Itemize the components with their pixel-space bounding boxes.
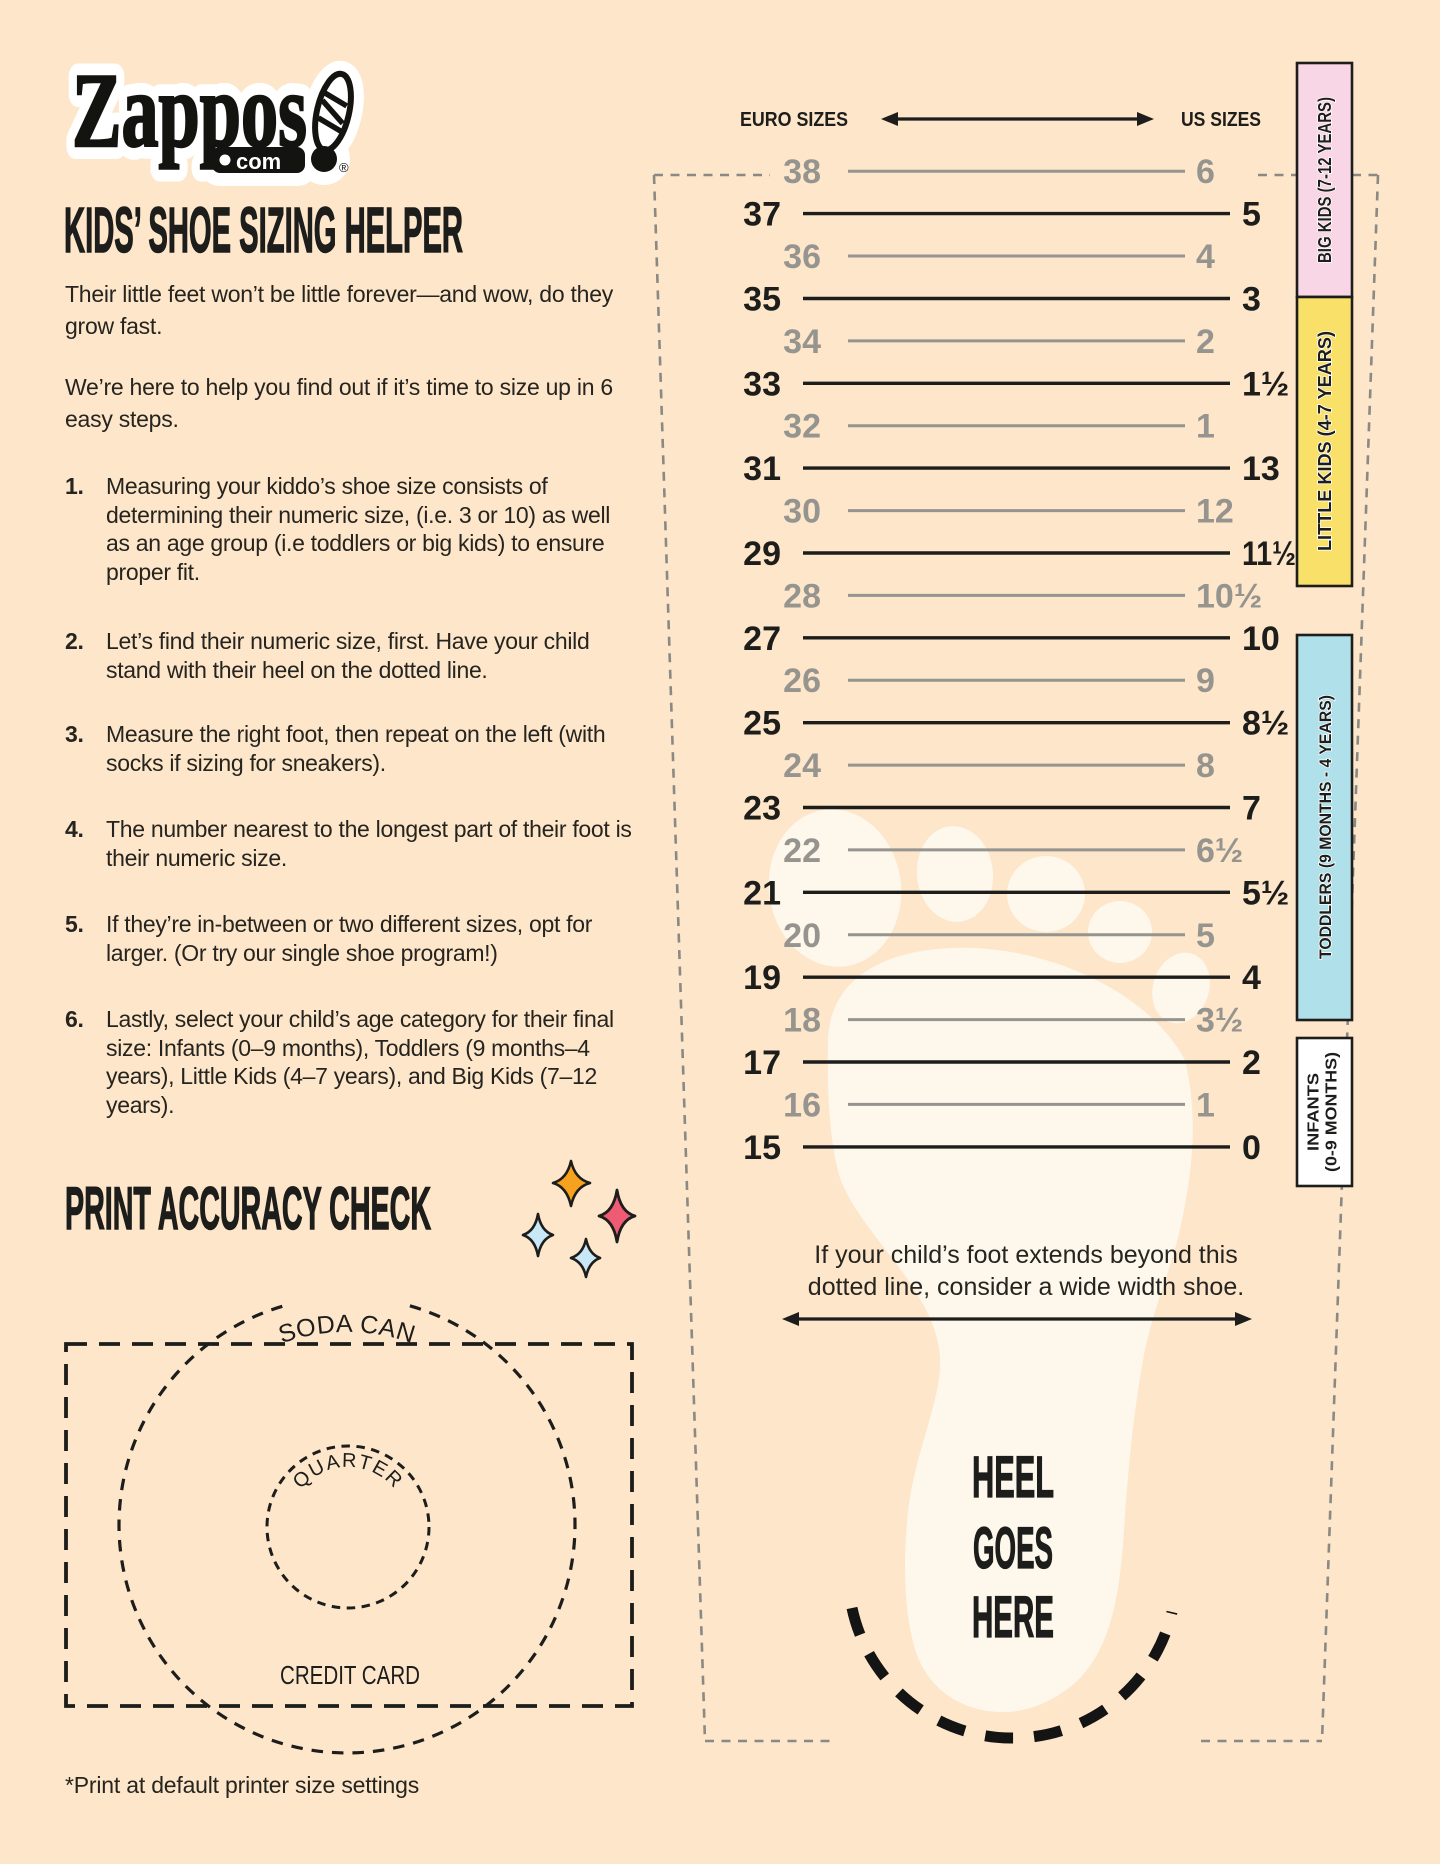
svg-text:15: 15 bbox=[743, 1129, 781, 1167]
svg-text:3: 3 bbox=[1242, 281, 1261, 319]
svg-text:13: 13 bbox=[1242, 450, 1280, 488]
svg-text:12: 12 bbox=[1196, 493, 1234, 531]
svg-text:6: 6 bbox=[1196, 153, 1215, 191]
svg-text:29: 29 bbox=[743, 535, 781, 573]
svg-text:5½: 5½ bbox=[1242, 874, 1289, 912]
svg-text:(0-9 MONTHS): (0-9 MONTHS) bbox=[1324, 1052, 1341, 1172]
svg-text:EURO SIZES: EURO SIZES bbox=[740, 109, 848, 131]
svg-text:6½: 6½ bbox=[1196, 832, 1243, 870]
svg-text:4: 4 bbox=[1242, 959, 1261, 997]
svg-text:28: 28 bbox=[783, 577, 821, 615]
svg-text:1: 1 bbox=[1196, 1086, 1215, 1124]
svg-text:37: 37 bbox=[743, 196, 781, 234]
svg-text:9: 9 bbox=[1196, 662, 1215, 700]
svg-text:25: 25 bbox=[743, 705, 781, 743]
svg-text:16: 16 bbox=[783, 1086, 821, 1124]
svg-text:1½: 1½ bbox=[1242, 365, 1289, 403]
svg-text:1: 1 bbox=[1196, 408, 1215, 446]
svg-text:10: 10 bbox=[1242, 620, 1280, 658]
svg-text:32: 32 bbox=[783, 408, 821, 446]
svg-text:BIG KIDS (7-12 YEARS): BIG KIDS (7-12 YEARS) bbox=[1315, 97, 1335, 263]
svg-text:CREDIT CARD: CREDIT CARD bbox=[280, 1660, 420, 1690]
svg-text:36: 36 bbox=[783, 238, 821, 276]
svg-text:27: 27 bbox=[743, 620, 781, 658]
svg-text:21: 21 bbox=[743, 874, 781, 912]
svg-text:PRINT ACCURACY CHECK: PRINT ACCURACY CHECK bbox=[65, 1175, 431, 1242]
svg-text:2: 2 bbox=[1242, 1044, 1261, 1082]
svg-text:5: 5 bbox=[1242, 196, 1261, 234]
svg-text:38: 38 bbox=[783, 153, 821, 191]
svg-text:2: 2 bbox=[1196, 323, 1215, 361]
svg-text:TODDLERS (9 MONTHS - 4 YEARS): TODDLERS (9 MONTHS - 4 YEARS) bbox=[1316, 695, 1335, 959]
svg-text:19: 19 bbox=[743, 959, 781, 997]
svg-text:HEEL: HEEL bbox=[972, 1445, 1054, 1510]
svg-text:dotted line, consider a wide w: dotted line, consider a wide width shoe. bbox=[808, 1273, 1244, 1301]
svg-text:18: 18 bbox=[783, 1002, 821, 1040]
svg-text:4: 4 bbox=[1196, 238, 1215, 276]
svg-text:20: 20 bbox=[783, 917, 821, 955]
svg-text:8: 8 bbox=[1196, 747, 1215, 785]
svg-text:33: 33 bbox=[743, 365, 781, 403]
svg-text:HERE: HERE bbox=[972, 1585, 1054, 1650]
svg-text:com: com bbox=[236, 149, 281, 174]
svg-text:3½: 3½ bbox=[1196, 1002, 1243, 1040]
svg-text:7: 7 bbox=[1242, 790, 1261, 828]
svg-text:22: 22 bbox=[783, 832, 821, 870]
svg-text:17: 17 bbox=[743, 1044, 781, 1082]
svg-text:11½: 11½ bbox=[1242, 535, 1296, 573]
svg-text:34: 34 bbox=[783, 323, 821, 361]
svg-text:23: 23 bbox=[743, 790, 781, 828]
svg-text:31: 31 bbox=[743, 450, 781, 488]
svg-text:35: 35 bbox=[743, 281, 781, 319]
svg-text:If your child’s foot extends b: If your child’s foot extends beyond this bbox=[814, 1241, 1237, 1269]
svg-text:8½: 8½ bbox=[1242, 705, 1289, 743]
svg-text:GOES: GOES bbox=[973, 1516, 1053, 1581]
svg-text:®: ® bbox=[339, 160, 349, 175]
svg-text:KIDS’ SHOE SIZING HELPER: KIDS’ SHOE SIZING HELPER bbox=[64, 194, 463, 266]
svg-text:LITTLE KIDS (4-7 YEARS): LITTLE KIDS (4-7 YEARS) bbox=[1315, 331, 1335, 551]
svg-text:0: 0 bbox=[1242, 1129, 1261, 1167]
svg-text:30: 30 bbox=[783, 493, 821, 531]
svg-text:INFANTS: INFANTS bbox=[1306, 1073, 1323, 1151]
svg-text:10½: 10½ bbox=[1196, 577, 1262, 615]
svg-text:5: 5 bbox=[1196, 917, 1215, 955]
svg-text:24: 24 bbox=[783, 747, 821, 785]
svg-text:US SIZES: US SIZES bbox=[1181, 109, 1261, 131]
svg-text:26: 26 bbox=[783, 662, 821, 700]
